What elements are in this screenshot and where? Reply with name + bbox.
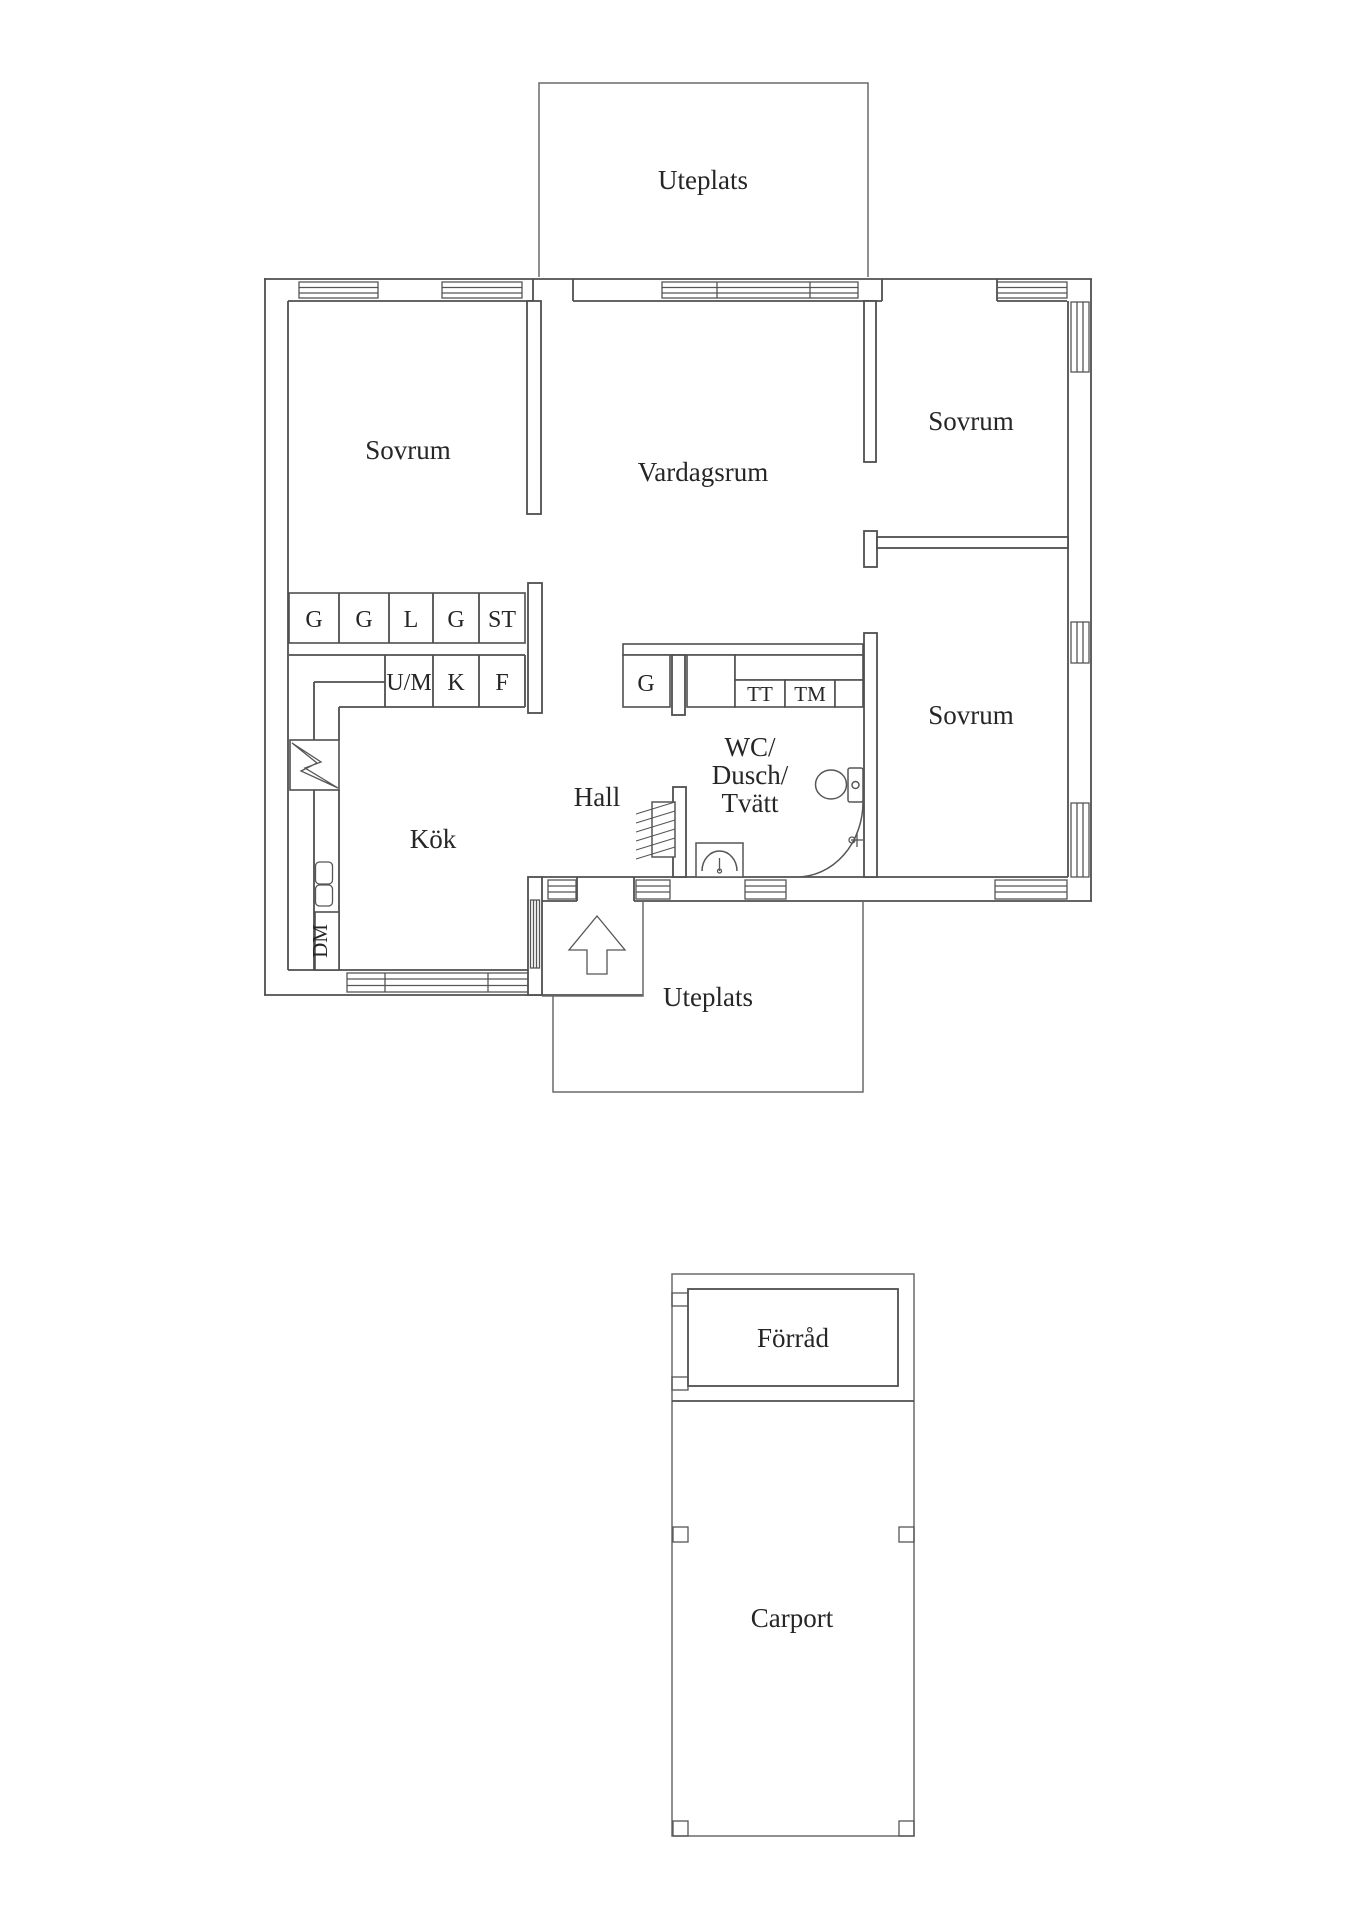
window-symbol bbox=[636, 880, 670, 899]
window-symbol bbox=[548, 880, 576, 899]
outbuilding-outline bbox=[672, 1274, 914, 1836]
window-symbol bbox=[662, 282, 858, 298]
room-label-bedroom-ne: Sovrum bbox=[928, 406, 1014, 436]
labels: Uteplats Sovrum Vardagsrum Sovrum Sovrum… bbox=[365, 165, 1014, 1633]
carport-label: Carport bbox=[751, 1603, 834, 1633]
sink-bowl-icon bbox=[316, 862, 333, 884]
carport-post bbox=[899, 1821, 914, 1836]
toilet-icon bbox=[816, 768, 864, 802]
kitchen-counter: DM bbox=[290, 682, 385, 970]
room-label-hall: Hall bbox=[574, 782, 621, 812]
laundry-unit-label: G bbox=[637, 671, 654, 697]
terrace-north-label: Uteplats bbox=[658, 165, 748, 195]
kitchen-unit-label: K bbox=[447, 670, 465, 696]
entrance-arrow-icon bbox=[569, 916, 625, 974]
window-symbol bbox=[995, 880, 1067, 899]
wall-bedroom-ne-west bbox=[864, 301, 876, 462]
wall-kitchen-hall-stub bbox=[528, 583, 542, 713]
window-symbol bbox=[997, 282, 1067, 298]
kitchen-unit-label: U/M bbox=[386, 670, 431, 696]
svg-text:Dusch/: Dusch/ bbox=[712, 760, 789, 790]
floorplan-page: G G L G ST U/M K F DM G bbox=[0, 0, 1357, 1920]
window-symbol bbox=[1071, 622, 1089, 663]
coat-rack-icon bbox=[636, 802, 675, 859]
wall-bedroom-se-west bbox=[864, 633, 877, 877]
storage-label: Förråd bbox=[757, 1323, 829, 1353]
svg-text:Tvätt: Tvätt bbox=[722, 788, 779, 818]
sink-bowl-icon bbox=[316, 885, 333, 906]
storage-door-jamb bbox=[672, 1293, 688, 1306]
carport-post bbox=[673, 1821, 688, 1836]
window-symbol bbox=[1071, 302, 1089, 372]
carport-post bbox=[899, 1527, 914, 1542]
room-label-bedroom-nw: Sovrum bbox=[365, 435, 451, 465]
storage-door-jamb bbox=[672, 1377, 688, 1390]
dishwasher-label: DM bbox=[308, 924, 332, 958]
svg-text:WC/: WC/ bbox=[725, 732, 776, 762]
outbuilding bbox=[672, 1274, 914, 1836]
room-label-living-room: Vardagsrum bbox=[638, 457, 768, 487]
room-label-bedroom-se: Sovrum bbox=[928, 700, 1014, 730]
wardrobe-label: ST bbox=[488, 607, 516, 633]
window-symbol bbox=[745, 880, 786, 899]
sink-icon bbox=[696, 843, 743, 877]
window-symbol bbox=[299, 282, 378, 298]
laundry-units: G TT TM bbox=[623, 644, 863, 715]
wardrobe-label: G bbox=[305, 607, 322, 633]
wardrobe-label: L bbox=[404, 607, 419, 633]
window-symbol bbox=[1071, 803, 1089, 877]
laundry-unit-label: TM bbox=[794, 682, 826, 706]
window-symbol bbox=[442, 282, 522, 298]
kitchen-unit-row: U/M K F bbox=[289, 655, 525, 707]
window-symbol bbox=[347, 973, 528, 992]
wall-bedrooms-door-stub bbox=[864, 531, 877, 567]
kitchen-unit-label: F bbox=[495, 670, 508, 696]
room-label-bathroom: WC/ Dusch/ Tvätt bbox=[712, 732, 789, 818]
wall-bedroom-nw-east bbox=[527, 301, 541, 514]
wardrobe-row: G G L G ST bbox=[289, 593, 525, 643]
laundry-unit-label: TT bbox=[747, 682, 773, 706]
wall-hall-wc-stub bbox=[672, 655, 685, 715]
wall-between-east-bedrooms bbox=[877, 537, 1068, 548]
wardrobe-label: G bbox=[355, 607, 372, 633]
terrace-south-label: Uteplats bbox=[663, 982, 753, 1012]
carport-post bbox=[673, 1527, 688, 1542]
wardrobe-label: G bbox=[447, 607, 464, 633]
floorplan-drawing: G G L G ST U/M K F DM G bbox=[0, 0, 1357, 1920]
room-label-kitchen: Kök bbox=[410, 824, 457, 854]
wall-wc-north bbox=[623, 644, 863, 655]
